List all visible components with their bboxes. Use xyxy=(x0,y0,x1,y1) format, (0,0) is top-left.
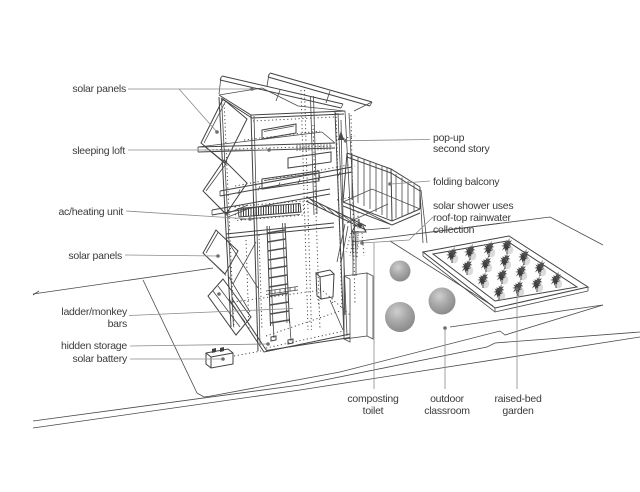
svg-text:ladder/monkey: ladder/monkey xyxy=(61,306,128,318)
svg-text:collection: collection xyxy=(433,224,475,236)
svg-text:classroom: classroom xyxy=(424,405,470,417)
svg-text:outdoor: outdoor xyxy=(430,393,465,405)
svg-text:composting: composting xyxy=(347,393,399,405)
svg-text:solar shower uses: solar shower uses xyxy=(433,200,513,212)
svg-text:ac/heating unit: ac/heating unit xyxy=(58,206,123,218)
svg-text:garden: garden xyxy=(502,405,534,417)
svg-text:bars: bars xyxy=(108,318,127,330)
svg-text:hidden storage: hidden storage xyxy=(61,340,127,352)
svg-text:second story: second story xyxy=(433,143,491,155)
svg-text:toilet: toilet xyxy=(363,405,384,417)
svg-text:solar battery: solar battery xyxy=(72,353,128,365)
svg-text:raised-bed: raised-bed xyxy=(494,393,542,405)
svg-text:folding balcony: folding balcony xyxy=(433,176,500,188)
svg-text:roof-top rainwater: roof-top rainwater xyxy=(433,212,512,224)
svg-text:sleeping loft: sleeping loft xyxy=(72,145,125,157)
svg-text:solar panels: solar panels xyxy=(68,250,122,262)
svg-text:solar panels: solar panels xyxy=(72,83,126,95)
